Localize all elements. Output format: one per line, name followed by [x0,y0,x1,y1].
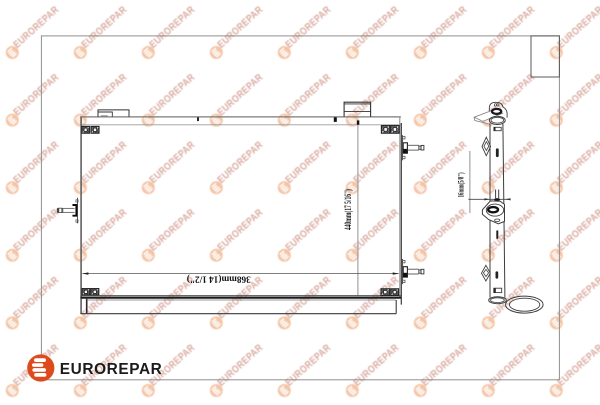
svg-text:368mm(14 1/2"): 368mm(14 1/2") [187,274,251,284]
svg-text:440mm(17 5/16"): 440mm(17 5/16") [343,189,354,230]
svg-text:16mm(5/8"): 16mm(5/8") [455,172,465,197]
svg-text:EUROREPAR: EUROREPAR [60,361,163,378]
